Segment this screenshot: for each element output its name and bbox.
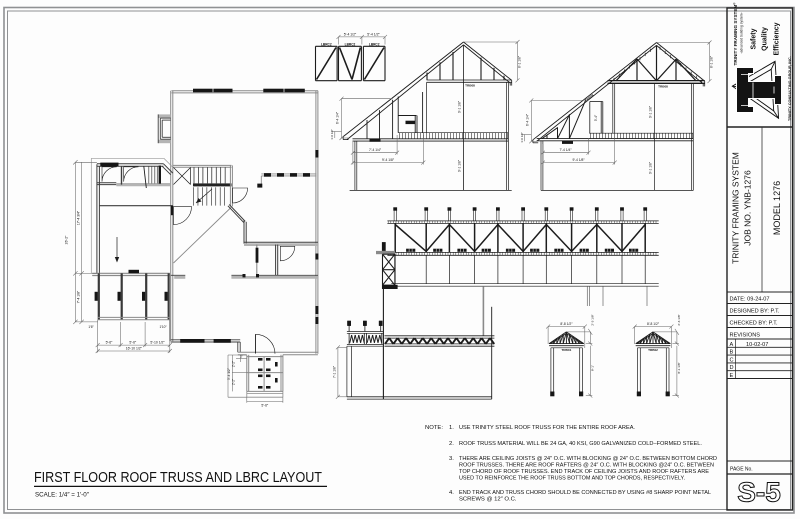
svg-text:10-02-07: 10-02-07 [746, 342, 768, 348]
svg-text:2′-3 1/8″: 2′-3 1/8″ [590, 313, 594, 325]
svg-text:Efficiency: Efficiency [774, 22, 781, 55]
svg-text:TRB01: TRB01 [561, 348, 571, 352]
svg-text:6′-4 1/4″: 6′-4 1/4″ [525, 113, 529, 126]
svg-text:END TRACK AND TRUSS CHORD SHOU: END TRACK AND TRUSS CHORD SHOULD BE CONN… [459, 490, 712, 496]
svg-text:2′-2″: 2′-2″ [232, 360, 236, 367]
svg-text:7′-4 1/4″: 7′-4 1/4″ [369, 148, 382, 152]
svg-text:5′-6″: 5′-6″ [106, 341, 114, 345]
svg-text:TRB08: TRB08 [465, 84, 475, 88]
svg-text:26′-2″: 26′-2″ [65, 235, 69, 244]
svg-text:TRB08: TRB08 [658, 84, 668, 88]
svg-text:LBRC2: LBRC2 [369, 42, 380, 46]
svg-text:E: E [730, 373, 734, 379]
svg-text:REVISIONS: REVISIONS [730, 333, 761, 339]
svg-text:S-5: S-5 [737, 477, 781, 508]
svg-text:9′-4 1/8″: 9′-4 1/8″ [382, 158, 395, 162]
svg-text:5′-4 1/2″: 5′-4 1/2″ [367, 32, 380, 36]
svg-text:8′-8 1/2″: 8′-8 1/2″ [560, 322, 573, 326]
svg-text:8′-1 1/8″: 8′-1 1/8″ [518, 55, 522, 68]
svg-text:ROOF TRUSSES. THERE ARE ROOF: ROOF TRUSSES. THERE ARE ROOF RAFTERS @ 2… [459, 463, 714, 469]
svg-text:DATE: 09-24-07: DATE: 09-24-07 [730, 297, 770, 303]
svg-text:1′-0 1/8″: 1′-0 1/8″ [520, 132, 524, 143]
svg-text:LBRC2: LBRC2 [321, 42, 332, 46]
svg-text:TRINITY CONSULTING GROUP, INC.: TRINITY CONSULTING GROUP, INC. [788, 56, 792, 121]
svg-text:2′-2″: 2′-2″ [232, 378, 236, 385]
svg-text:5′-4 1/2″: 5′-4 1/2″ [344, 32, 357, 36]
svg-text:2′-3 1/8″: 2′-3 1/8″ [677, 313, 681, 325]
svg-text:FIRST FLOOR ROOF TRUSS AND LBR: FIRST FLOOR ROOF TRUSS AND LBRC LAYOUT [34, 469, 322, 486]
svg-text:1.: 1. [449, 425, 454, 431]
svg-text:D: D [730, 365, 734, 371]
svg-text:5′-4″: 5′-4″ [594, 114, 598, 121]
svg-text:SCALE: 1/4″ = 1′-0″: SCALE: 1/4″ = 1′-0″ [35, 492, 90, 499]
svg-text:17′-4 3/4″: 17′-4 3/4″ [76, 210, 80, 225]
svg-text:-advanced building system-: -advanced building system- [740, 12, 744, 53]
svg-text:TRB02: TRB02 [648, 348, 658, 352]
svg-text:3.: 3. [449, 456, 454, 462]
svg-text:THERE ARE CEILING JOISTS @ 24″: THERE ARE CEILING JOISTS @ 24″ O.C. WITH… [459, 456, 717, 462]
svg-text:1′6″: 1′6″ [88, 325, 94, 329]
svg-text:8′-1″: 8′-1″ [590, 364, 594, 371]
svg-text:LBRC2: LBRC2 [345, 42, 356, 46]
svg-text:TRINITY FRAMING SYSTEM®: TRINITY FRAMING SYSTEM® [733, 2, 739, 66]
svg-text:TRINITY FRAMING SYSTEM: TRINITY FRAMING SYSTEM [731, 152, 741, 264]
svg-text:ROOF TRUSS MATERIAL WILL BE 24: ROOF TRUSS MATERIAL WILL BE 24 GA, 40 KS… [459, 441, 702, 447]
svg-text:8′-8 1/2″: 8′-8 1/2″ [647, 322, 660, 326]
svg-text:2.: 2. [449, 441, 454, 447]
svg-text:1′10″: 1′10″ [159, 325, 167, 329]
svg-text:6′-4 1/4″: 6′-4 1/4″ [336, 111, 340, 124]
svg-text:MODEL 1276: MODEL 1276 [772, 181, 782, 235]
svg-text:CHECKED BY: P.T.: CHECKED BY: P.T. [730, 321, 779, 327]
svg-text:Safety: Safety [751, 28, 758, 49]
svg-text:5′-4 1/2″: 5′-4 1/2″ [227, 367, 231, 380]
svg-text:TOP CHORD OF ROOF TRUSSES. EN: TOP CHORD OF ROOF TRUSSES. END TRACK OF … [459, 469, 709, 475]
svg-text:7′-4 1/8″: 7′-4 1/8″ [76, 290, 80, 303]
svg-text:16′-10 1/2″: 16′-10 1/2″ [126, 347, 143, 351]
svg-text:9′-4 1/8″: 9′-4 1/8″ [572, 158, 585, 162]
svg-text:9′-1 1/8″: 9′-1 1/8″ [649, 105, 653, 118]
svg-text:SCREWS @ 12″ O.C.: SCREWS @ 12″ O.C. [459, 497, 517, 503]
svg-text:9′-1 1/8″: 9′-1 1/8″ [458, 100, 462, 113]
svg-text:9′-1 1/8″: 9′-1 1/8″ [649, 161, 653, 174]
svg-text:Quality: Quality [762, 27, 769, 51]
svg-text:5′-6″: 5′-6″ [129, 341, 137, 345]
svg-text:USE TRINITY STEEL ROOF TRUSS F: USE TRINITY STEEL ROOF TRUSS FOR THE ENT… [459, 425, 635, 431]
svg-text:C: C [730, 357, 734, 363]
svg-text:A: A [730, 342, 734, 348]
svg-text:4.: 4. [449, 490, 454, 496]
svg-text:8′-1 1/8″: 8′-1 1/8″ [677, 361, 681, 373]
svg-text:9′-1 1/8″: 9′-1 1/8″ [458, 159, 462, 172]
svg-text:1′-0 1/8″: 1′-0 1/8″ [330, 129, 334, 140]
svg-text:5′-10 1/2″: 5′-10 1/2″ [150, 341, 165, 345]
svg-text:5′-6″: 5′-6″ [261, 404, 269, 408]
svg-text:JOB NO. YNB-1276: JOB NO. YNB-1276 [743, 170, 753, 246]
svg-text:8′-1 1/8″: 8′-1 1/8″ [710, 55, 714, 68]
svg-text:DESIGNED BY: P.T.: DESIGNED BY: P.T. [730, 309, 780, 315]
svg-text:7′-1 1/8″: 7′-1 1/8″ [332, 365, 336, 378]
svg-text:NOTE:: NOTE: [425, 425, 443, 431]
svg-text:7′-4 1/4″: 7′-4 1/4″ [559, 148, 572, 152]
svg-text:B: B [730, 350, 734, 356]
svg-text:PAGE No.: PAGE No. [730, 467, 753, 473]
svg-text:USED TO REINFORCE THE ROOF TRU: USED TO REINFORCE THE ROOF TRUSS BOTTOM … [459, 476, 685, 482]
